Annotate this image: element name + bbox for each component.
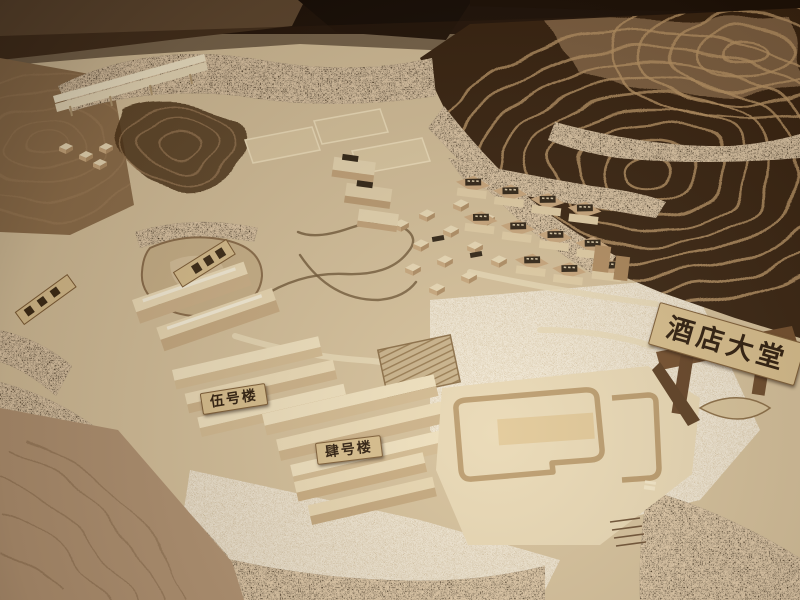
tall-block [592,245,611,273]
scale-model-photo: 酒店大堂 伍号楼 肆号楼 [0,0,800,600]
tall-block [613,256,630,282]
model-scene [0,0,800,600]
